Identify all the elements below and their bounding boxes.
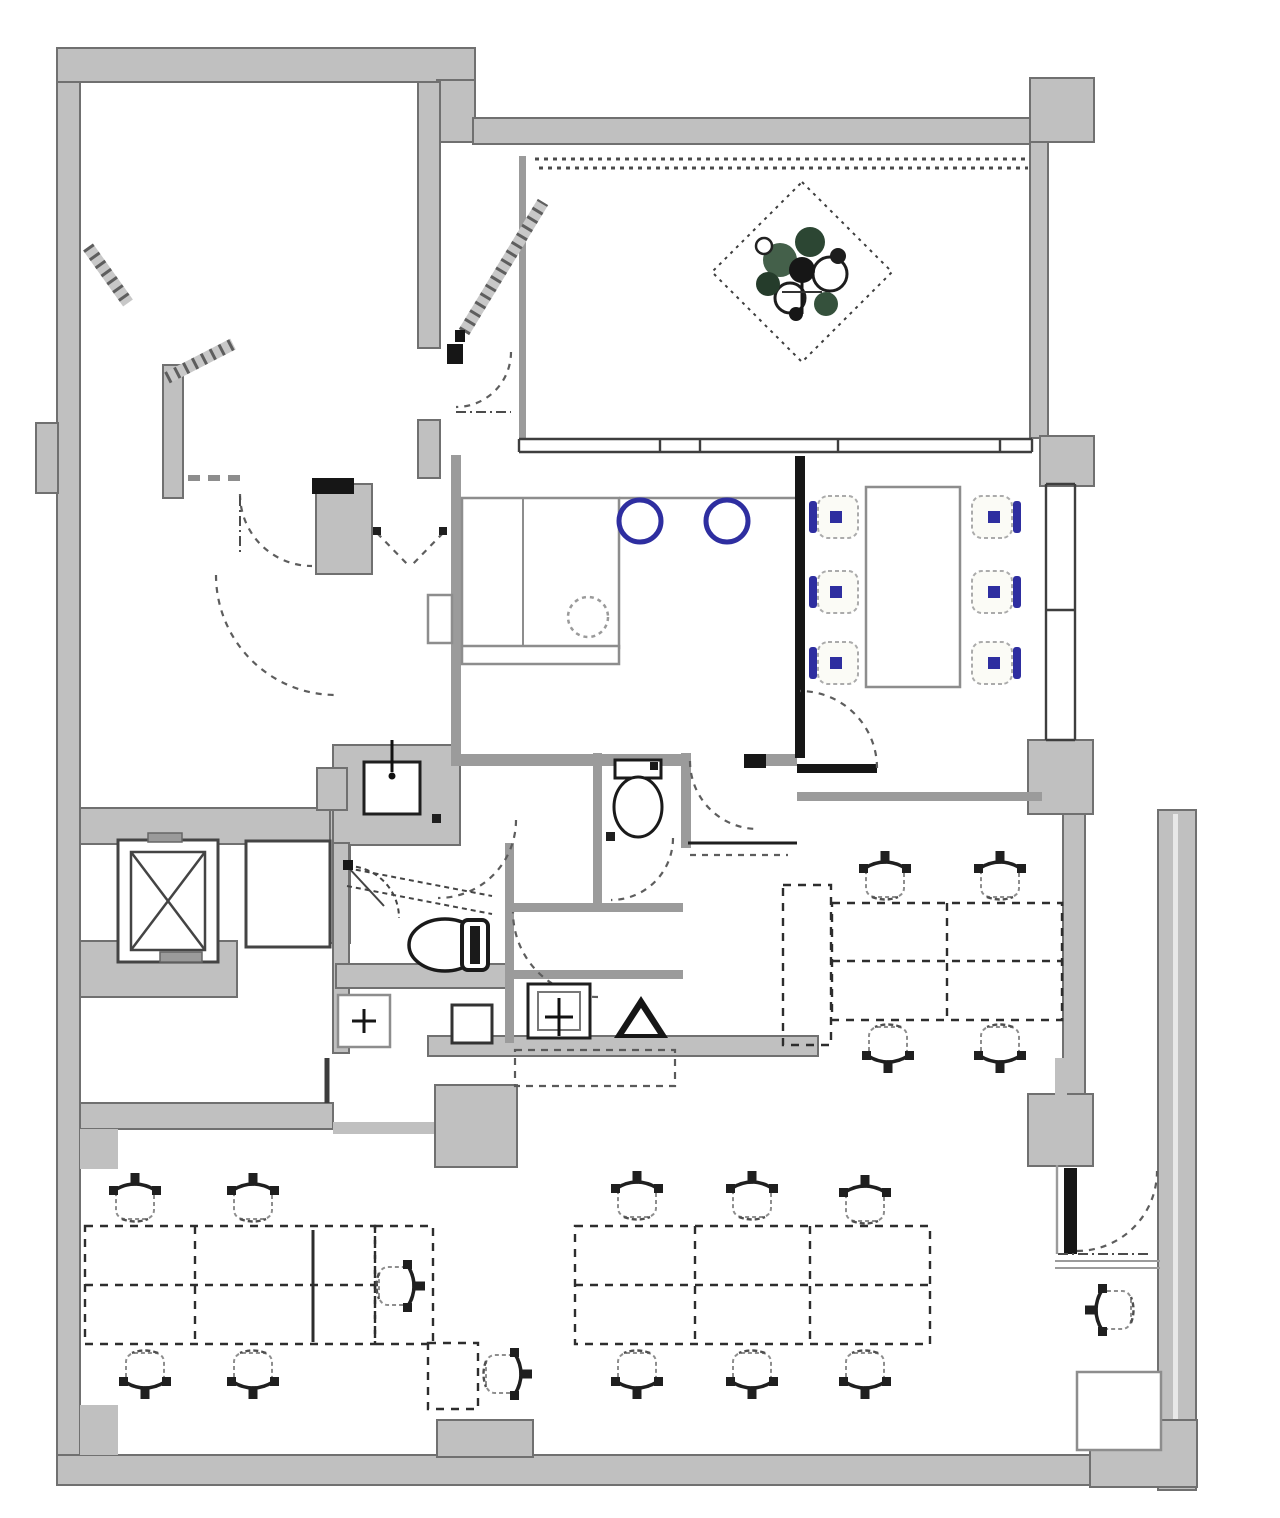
meeting-chair-icon [972,496,1021,538]
floor-plan-drawing [0,0,1280,1518]
meeting-chair-icon [809,496,858,538]
wash-basin-icon [528,984,590,1038]
meeting-chair-icon [972,642,1021,684]
toilet-icon [614,760,662,837]
stove-burner-icon [619,500,661,542]
kitchen-counter [462,498,619,648]
meeting-table [866,487,960,687]
door-leaf [1064,1168,1077,1254]
meeting-chair-icon [809,571,858,613]
door-leaf [797,764,877,773]
fixture-box [452,1005,492,1043]
door-leaf [312,478,354,494]
desk-small [1077,1372,1161,1450]
service-shaft [246,841,330,947]
meeting-room-solid-wall [795,456,805,758]
toilet-icon [409,919,488,971]
meeting-chair-icon [809,642,858,684]
hand-wash-basin-icon [338,995,390,1047]
meeting-room [809,487,1021,687]
door-leaf [744,754,766,768]
meeting-chair-icon [972,571,1021,613]
stove-burner-icon [706,500,748,542]
door-leaf [447,344,463,364]
floor-plan-page [0,0,1280,1518]
